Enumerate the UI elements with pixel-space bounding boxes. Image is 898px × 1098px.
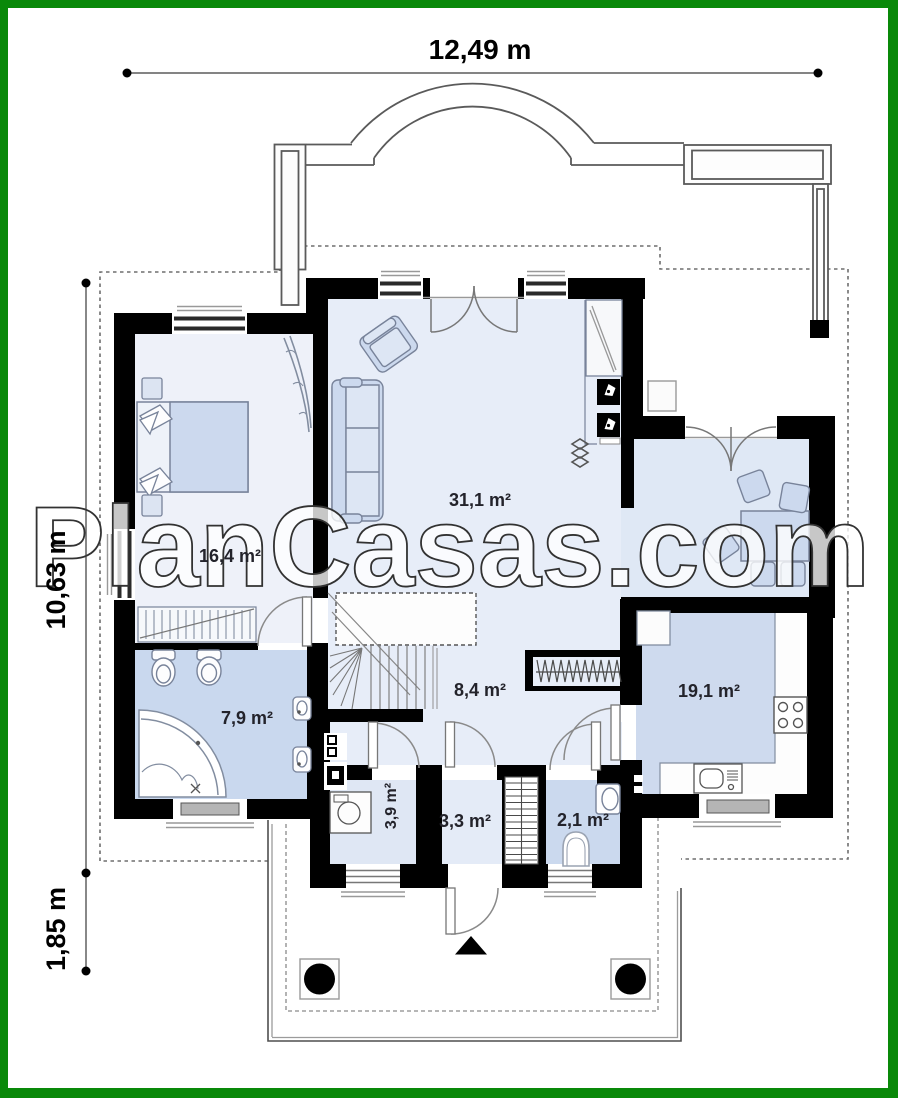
svg-text:31,1 m²: 31,1 m² (449, 490, 511, 510)
svg-text:3,3 m²: 3,3 m² (439, 811, 491, 831)
svg-text:7,9 m²: 7,9 m² (221, 708, 273, 728)
svg-text:16,4 m²: 16,4 m² (199, 546, 261, 566)
svg-text:2,1 m²: 2,1 m² (557, 810, 609, 830)
svg-text:1,85 m: 1,85 m (41, 887, 71, 971)
svg-text:3,9 m²: 3,9 m² (383, 783, 400, 829)
svg-text:10,63 m: 10,63 m (41, 530, 71, 629)
svg-text:19,1 m²: 19,1 m² (678, 681, 740, 701)
svg-text:12,49 m: 12,49 m (429, 34, 532, 65)
svg-text:8,4 m²: 8,4 m² (454, 680, 506, 700)
